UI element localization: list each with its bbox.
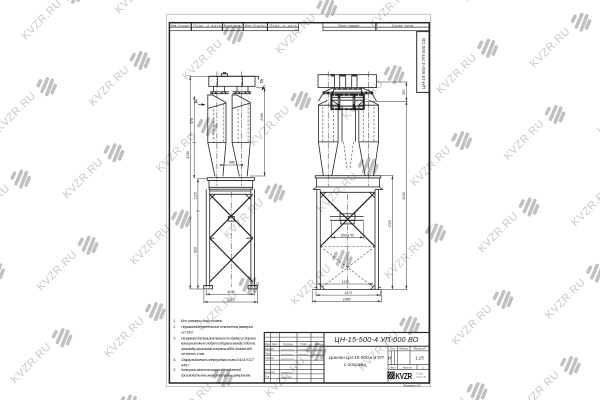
svg-text:3130: 3130 [186,151,190,159]
svg-text:Подп. и дата: Подп. и дата [270,23,297,27]
svg-text:1472: 1472 [344,291,352,295]
svg-text:760: 760 [402,90,406,96]
svg-text:KVZR.RU: KVZR.RU [61,156,106,201]
svg-text:KVZR.RU: KVZR.RU [102,315,147,360]
svg-text:Контроль качества сварных соед: Контроль качества сварных соединений [181,368,241,372]
svg-text:KVZR.RU: KVZR.RU [450,302,495,347]
svg-text:Формат А3: Формат А3 [404,383,421,387]
svg-text:378: 378 [190,118,194,124]
svg-text:KVZR: KVZR [395,371,412,381]
svg-text:На каркасе для горизонтальност: На каркасе для горизонтальности бункер и… [181,336,256,340]
svg-text:Инв. N подл.: Инв. N подл. [171,23,190,27]
svg-text:448: 448 [229,161,235,165]
svg-text:КТЗквт: КТЗквт [416,374,424,376]
svg-text:KVZR.RU: KVZR.RU [434,51,479,96]
svg-text:KVZR.RU: KVZR.RU [87,64,132,109]
svg-text:Масштаб: Масштаб [414,347,426,351]
svg-text:KVZR.RU: KVZR.RU [595,92,600,137]
svg-text:2190: 2190 [260,113,264,122]
svg-text:KVZR.RU: KVZR.RU [9,341,54,386]
svg-text:прокладку крышками опорным айб: прокладку крышками опорным айба. Клапан … [181,347,253,351]
svg-text:3130: 3130 [402,192,406,200]
svg-text:Все размеры для справок.: Все размеры для справок. [181,319,223,323]
svg-text:KVZR.RU: KVZR.RU [517,369,562,400]
svg-text:Н.контр.: Н.контр. [265,370,275,374]
svg-text:Пров.: Пров. [265,352,272,356]
svg-text:Подп.: Подп. [301,342,308,346]
svg-text:Неуказанные предельные отклоне: Неуказанные предельные отклонения размер… [181,325,253,329]
svg-text:1.: 1. [173,319,176,323]
svg-text:Сварку выполнить электродами т: Сварку выполнить электродами типа Э-42 А… [181,358,255,362]
svg-text:Справ. прим.: Справ. прим. [392,23,414,27]
svg-text:1:25: 1:25 [415,356,424,361]
svg-text:Инв. N дубл.: Инв. N дубл. [245,23,266,27]
svg-text:KVZR.RU: KVZR.RU [476,210,521,255]
svg-text:±IT14/2.: ±IT14/2. [181,330,194,334]
svg-text:Подп. и дата: Подп. и дата [193,23,220,27]
svg-text:Т.контр.: Т.контр. [265,356,275,360]
svg-text:2.: 2. [172,325,176,329]
svg-text:850 х 50: 850 х 50 [341,233,354,237]
svg-text:А: А [193,99,198,105]
svg-text:3.: 3. [173,336,176,340]
svg-text:KVZR.RU: KVZR.RU [424,395,469,400]
svg-text:Листов: Листов [402,366,412,370]
svg-text:KVZR.RU: KVZR.RU [19,0,64,42]
svg-text:кольца колонных следует собира: кольца колонных следует собирать между с… [181,342,255,346]
svg-text:1310: 1310 [227,298,235,302]
svg-text:Дата: Дата [315,342,321,346]
svg-text:KVZR.RU: KVZR.RU [528,25,573,70]
svg-text:Лит.: Лит. [390,347,395,351]
svg-text:KVZR.RU: KVZR.RU [569,184,600,229]
svg-text:Лист: Лист [272,342,278,346]
svg-text:1125: 1125 [194,192,198,199]
svg-text:Лист: Лист [390,366,397,370]
svg-text:KVZR.RU: KVZR.RU [502,118,547,163]
svg-text:5.: 5. [173,368,176,372]
svg-text:KVZR.RU: KVZR.RU [0,182,12,227]
svg-text:800: 800 [194,247,198,253]
svg-text:производить внешним осмотром и: производить внешним осмотром и измерение… [181,374,251,378]
svg-text:KVZR.RU: KVZR.RU [0,90,38,135]
svg-text:N докум.: N докум. [283,342,294,346]
svg-text:Циклон ЦН-15-500 в 4 УП: Циклон ЦН-15-500 в 4 УП [329,355,384,360]
svg-text:не менее 4 мм.: не менее 4 мм. [181,352,205,356]
svg-text:с опорами: с опорами [344,362,366,367]
svg-text:Взам. инв.: Взам. инв. [224,23,242,27]
svg-text:Перв. примен.: Перв. примен. [338,23,360,27]
svg-text:1680: 1680 [343,297,351,301]
svg-text:4.: 4. [173,358,176,362]
svg-text:Б: Б [260,79,264,85]
svg-text:Масса: Масса [400,347,409,351]
svg-text:KVZR.RU: KVZR.RU [543,276,588,321]
svg-text:ЦН-15-500-4 УП-000 СБ: ЦН-15-500-4 УП-000 СБ [421,38,426,89]
svg-text:1310: 1310 [342,280,350,284]
svg-text:KVZR.RU: KVZR.RU [113,0,158,16]
svg-text:Разраб.: Разраб. [265,347,275,351]
svg-text:ЦН-15-500-4 УП-000 ВО: ЦН-15-500-4 УП-000 ВО [334,335,418,344]
svg-text:1725: 1725 [388,220,392,228]
svg-text:1130: 1130 [227,290,234,294]
svg-text:Изм: Изм [265,342,270,346]
svg-text:И: И [388,356,391,361]
svg-text:KVZR.RU: KVZR.RU [35,248,80,293]
svg-text:KVZR.RU: KVZR.RU [460,0,505,4]
svg-text:Утв.: Утв. [265,375,270,379]
svg-text:9467.: 9467. [181,363,190,367]
svg-text:ЗКЦР-НР: ЗКЦР-НР [416,377,426,379]
